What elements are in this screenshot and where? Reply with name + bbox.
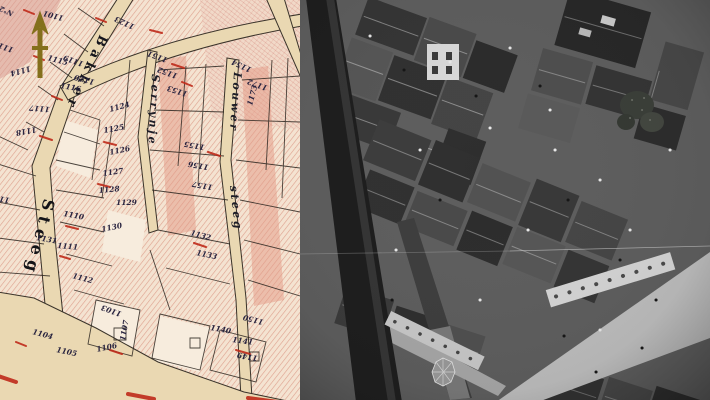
parcel-number: 1117 [28, 103, 50, 114]
aerial-photo-panel [300, 0, 710, 400]
parcel-number: 1129 [116, 198, 138, 207]
parcel-number: 1128 [98, 184, 120, 195]
aerial-photograph [300, 0, 710, 400]
parcel-number: 1111 [57, 241, 79, 252]
cadastral-map-panel: Bakker Steeg Serrynje Louwer steeg N°2 1… [0, 0, 300, 400]
photo-vignette [300, 0, 710, 400]
comparison-stage: Bakker Steeg Serrynje Louwer steeg N°2 1… [0, 0, 710, 400]
cadastral-map: Bakker Steeg Serrynje Louwer steeg N°2 1… [0, 0, 300, 400]
